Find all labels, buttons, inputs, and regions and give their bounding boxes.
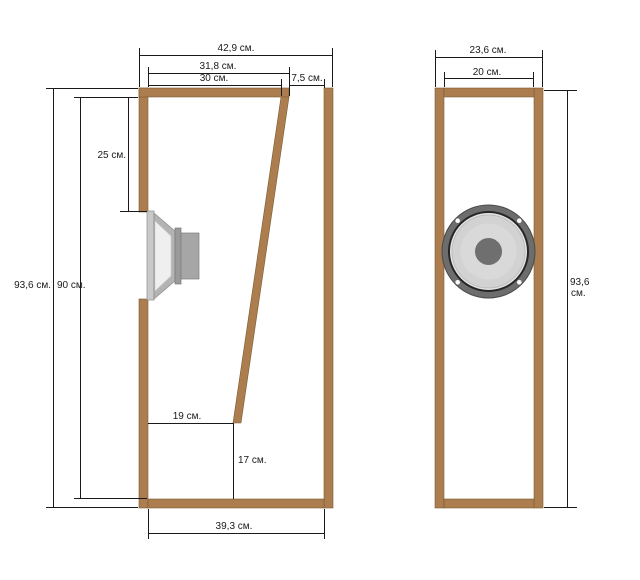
front-bottom-panel: [444, 499, 534, 508]
driver-screw-hole: [455, 280, 460, 285]
dim-label: 30 см.: [200, 73, 229, 84]
dim-front-overall-width: 23,6 см.: [435, 45, 543, 87]
dim-label: 17 см.: [238, 455, 267, 466]
side-slanted-divider-panel: [233, 97, 289, 423]
driver-mounting-flange: [147, 211, 154, 300]
dim-side-bottom-gap-height: 17 см.: [234, 423, 267, 499]
driver-front-view: [442, 205, 535, 298]
driver-dust-cap: [475, 238, 502, 265]
driver-screw-hole: [455, 218, 460, 223]
speaker-cabinet-drawing: 42,9 см. 31,8 см. 30 см. 7,5 см. 93,6 см…: [0, 0, 640, 580]
driver-screw-hole: [517, 218, 522, 223]
driver-side-view: [147, 211, 199, 300]
dim-label: 39,3 см.: [216, 521, 253, 532]
side-bottom-panel: [148, 499, 324, 508]
dim-side-bottom-width-to-divider: 19 см.: [148, 411, 233, 424]
front-right-wall: [534, 88, 543, 508]
dim-side-top-port-width: 7,5 см.: [289, 73, 325, 88]
side-top-panel: [139, 88, 289, 97]
dim-label: 42,9 см.: [218, 43, 255, 54]
dim-front-overall-height: 93,6 см.: [544, 90, 590, 508]
dim-label-unit: см.: [571, 288, 586, 299]
dim-label-value: 93,6: [570, 277, 590, 288]
dim-side-bottom-inner-width: 39,3 см.: [148, 509, 325, 539]
dim-label: 31,8 см.: [200, 61, 237, 72]
dim-label: 93,6 см.: [14, 280, 51, 291]
dim-label: 25 см.: [97, 150, 126, 161]
side-front-wall-upper: [139, 88, 148, 212]
front-view: 23,6 см. 20 см. 93,6 см.: [435, 45, 590, 508]
front-top-panel: [444, 88, 534, 97]
front-left-wall: [435, 88, 444, 508]
dim-label: 23,6 см.: [470, 45, 507, 56]
side-front-wall-lower: [139, 299, 148, 508]
drawing-svg: 42,9 см. 31,8 см. 30 см. 7,5 см. 93,6 см…: [0, 0, 640, 580]
side-view: 42,9 см. 31,8 см. 30 см. 7,5 см. 93,6 см…: [14, 43, 333, 539]
driver-screw-hole: [517, 280, 522, 285]
driver-back-plate: [175, 228, 181, 284]
dim-front-inner-width: 20 см.: [444, 67, 534, 87]
dim-label: 20 см.: [473, 67, 502, 78]
dim-label: 90 см.: [57, 280, 86, 291]
driver-magnet: [181, 233, 199, 279]
side-back-wall: [324, 88, 333, 508]
dim-label: 7,5 см.: [291, 73, 322, 84]
dim-label: 19 см.: [173, 411, 202, 422]
